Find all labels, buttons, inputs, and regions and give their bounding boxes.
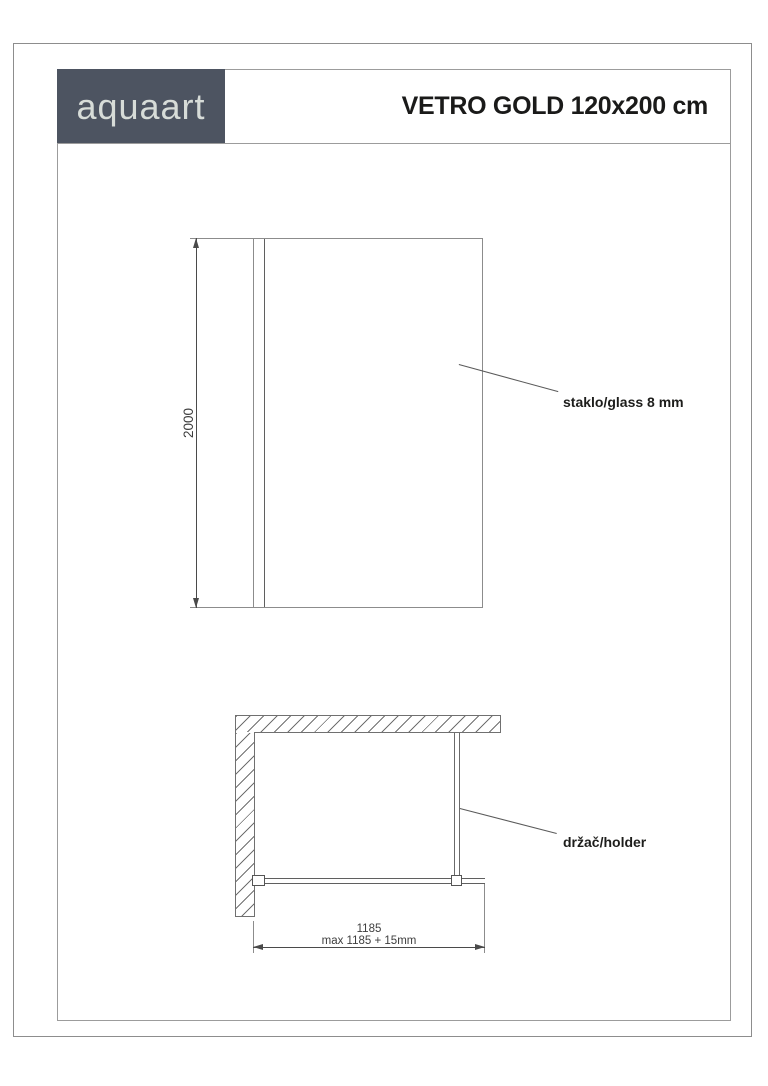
wall-outline-inner-horizontal bbox=[254, 732, 501, 733]
wall-outline-bottom bbox=[235, 916, 255, 917]
height-dimension-arrow-down bbox=[193, 598, 199, 608]
wall-profile-block-plan bbox=[252, 875, 265, 886]
wall-outline-top bbox=[235, 715, 501, 716]
wall-outline-right-end bbox=[500, 715, 501, 733]
width-dimension-line bbox=[253, 947, 485, 948]
spec-sheet-page: aquaart VETRO GOLD 120x200 cm 2000 stakl… bbox=[0, 0, 768, 1086]
glass-panel-front bbox=[253, 238, 483, 608]
glass-label: staklo/glass 8 mm bbox=[563, 394, 684, 410]
height-dimension-arrow-up bbox=[193, 238, 199, 248]
holder-bar-plan bbox=[454, 733, 460, 877]
height-extension-line-top bbox=[190, 238, 253, 239]
wall-hatch-left bbox=[236, 733, 254, 916]
header-divider bbox=[57, 143, 731, 144]
height-dimension-label: 2000 bbox=[167, 405, 209, 441]
brand-logo-box: aquaart bbox=[57, 69, 225, 144]
wall-outline-inner-vertical bbox=[254, 732, 255, 917]
holder-attachment-block-plan bbox=[451, 875, 462, 886]
product-title: VETRO GOLD 120x200 cm bbox=[402, 92, 708, 121]
holder-label: držač/holder bbox=[563, 834, 646, 850]
header-title-area: VETRO GOLD 120x200 cm bbox=[225, 69, 731, 144]
height-extension-line-bottom bbox=[190, 607, 253, 608]
width-dimension-label: 1185 bbox=[253, 923, 485, 935]
width-dimension-max-label: max 1185 + 15mm bbox=[253, 935, 485, 947]
wall-hatch-top bbox=[236, 716, 500, 732]
wall-profile-front-line bbox=[264, 239, 265, 607]
wall-outline-outer-left bbox=[235, 715, 236, 917]
brand-logo-text: aquaart bbox=[76, 86, 205, 128]
